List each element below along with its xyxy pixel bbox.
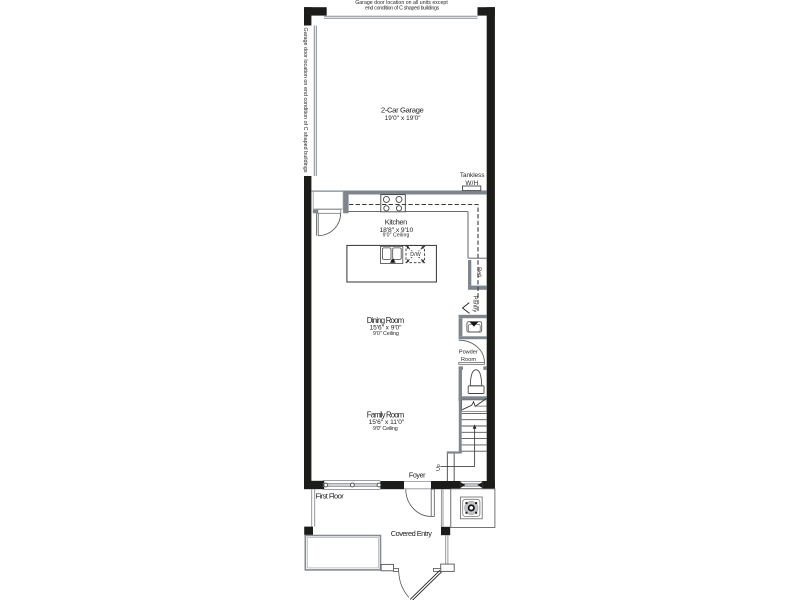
svg-text:9′0″ Ceiling: 9′0″ Ceiling [373,331,399,337]
svg-text:First Floor: First Floor [316,492,345,501]
svg-text:9′0″ Ceiling: 9′0″ Ceiling [383,233,410,239]
svg-text:Room: Room [461,357,476,363]
svg-text:W/H: W/H [465,180,478,187]
svg-text:Kitchen: Kitchen [385,217,408,226]
svg-text:Covered Entry: Covered Entry [391,529,432,538]
svg-text:19′0″ x 19′0″: 19′0″ x 19′0″ [385,115,422,122]
svg-text:Pantry: Pantry [472,296,478,313]
svg-text:Up: Up [436,464,442,471]
svg-text:2-Car Garage: 2-Car Garage [381,105,424,114]
svg-text:Powder: Powder [459,350,478,356]
svg-text:Ref/: Ref/ [475,267,481,278]
svg-text:Garage door location on end co: Garage door location on end condition of… [302,28,308,173]
svg-text:D/W: D/W [410,252,421,258]
svg-text:Foyer: Foyer [409,471,426,479]
svg-text:end condition of C shaped buil: end condition of C shaped buildings [365,6,440,12]
svg-text:9′0″ Ceiling: 9′0″ Ceiling [373,426,398,432]
svg-text:Tankless: Tankless [460,172,485,179]
